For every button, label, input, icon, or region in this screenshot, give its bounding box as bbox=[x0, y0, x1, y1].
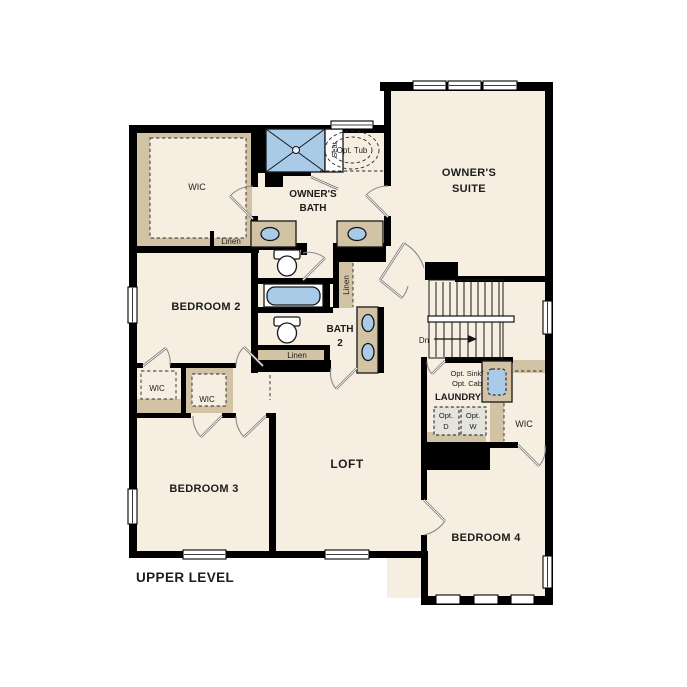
bath2-label-2: 2 bbox=[337, 338, 343, 349]
owners-bath-label-1: OWNER'S bbox=[289, 189, 337, 200]
hall-linen-label: Linen bbox=[342, 275, 351, 295]
bath2-linen-label: Linen bbox=[287, 351, 307, 360]
laundry-label: LAUNDRY bbox=[435, 392, 482, 403]
owners-suite-label-1: OWNER'S bbox=[442, 167, 496, 179]
bedroom2-label: BEDROOM 2 bbox=[171, 301, 240, 313]
bedroom2-wic-label: WIC bbox=[149, 384, 165, 393]
bath2-tub bbox=[264, 284, 323, 307]
opt-washer-label-2: W bbox=[469, 422, 477, 431]
plan-title: UPPER LEVEL bbox=[136, 570, 234, 585]
sink bbox=[362, 315, 374, 332]
loft-label: LOFT bbox=[330, 457, 363, 471]
owners-bath-label-2: BATH bbox=[299, 203, 326, 214]
owners-suite-label-2: SUITE bbox=[452, 183, 486, 195]
owners-linen-label: Linen bbox=[221, 237, 241, 246]
floor-plan-page: WIC Linen OWNER'S BATH Seat Opt. Tub OWN… bbox=[0, 0, 687, 687]
bedroom4-wic-label: WIC bbox=[515, 419, 533, 429]
opt-sink-label-1: Opt. Sink/ bbox=[451, 369, 485, 378]
floor-plan-drawing: WIC Linen OWNER'S BATH Seat Opt. Tub OWN… bbox=[0, 0, 687, 687]
bath2-vanity bbox=[357, 307, 378, 373]
laundry-opt-sink bbox=[482, 361, 512, 402]
bedroom4-wic-shelf-side bbox=[490, 402, 504, 442]
bedroom4-label: BEDROOM 4 bbox=[451, 532, 521, 544]
sink bbox=[348, 228, 366, 241]
sink bbox=[362, 344, 374, 361]
stair-railing bbox=[428, 316, 514, 322]
owners-wic-label: WIC bbox=[188, 182, 206, 192]
opt-dryer-label-1: Opt. bbox=[439, 411, 453, 420]
bedroom3-wic-label: WIC bbox=[199, 395, 215, 404]
opt-dryer-label-2: D bbox=[443, 422, 449, 431]
stairs-down-label: Dn bbox=[419, 336, 429, 345]
bedroom3-label: BEDROOM 3 bbox=[169, 483, 238, 495]
opt-washer-label-1: Opt. bbox=[466, 411, 480, 420]
bedroom2-wic-shelf bbox=[137, 399, 181, 413]
opt-tub-label: Opt. Tub bbox=[337, 146, 368, 155]
opt-sink-label-2: Opt. Cab bbox=[452, 379, 482, 388]
bath2-label-1: BATH bbox=[326, 324, 353, 335]
sink bbox=[261, 228, 279, 241]
